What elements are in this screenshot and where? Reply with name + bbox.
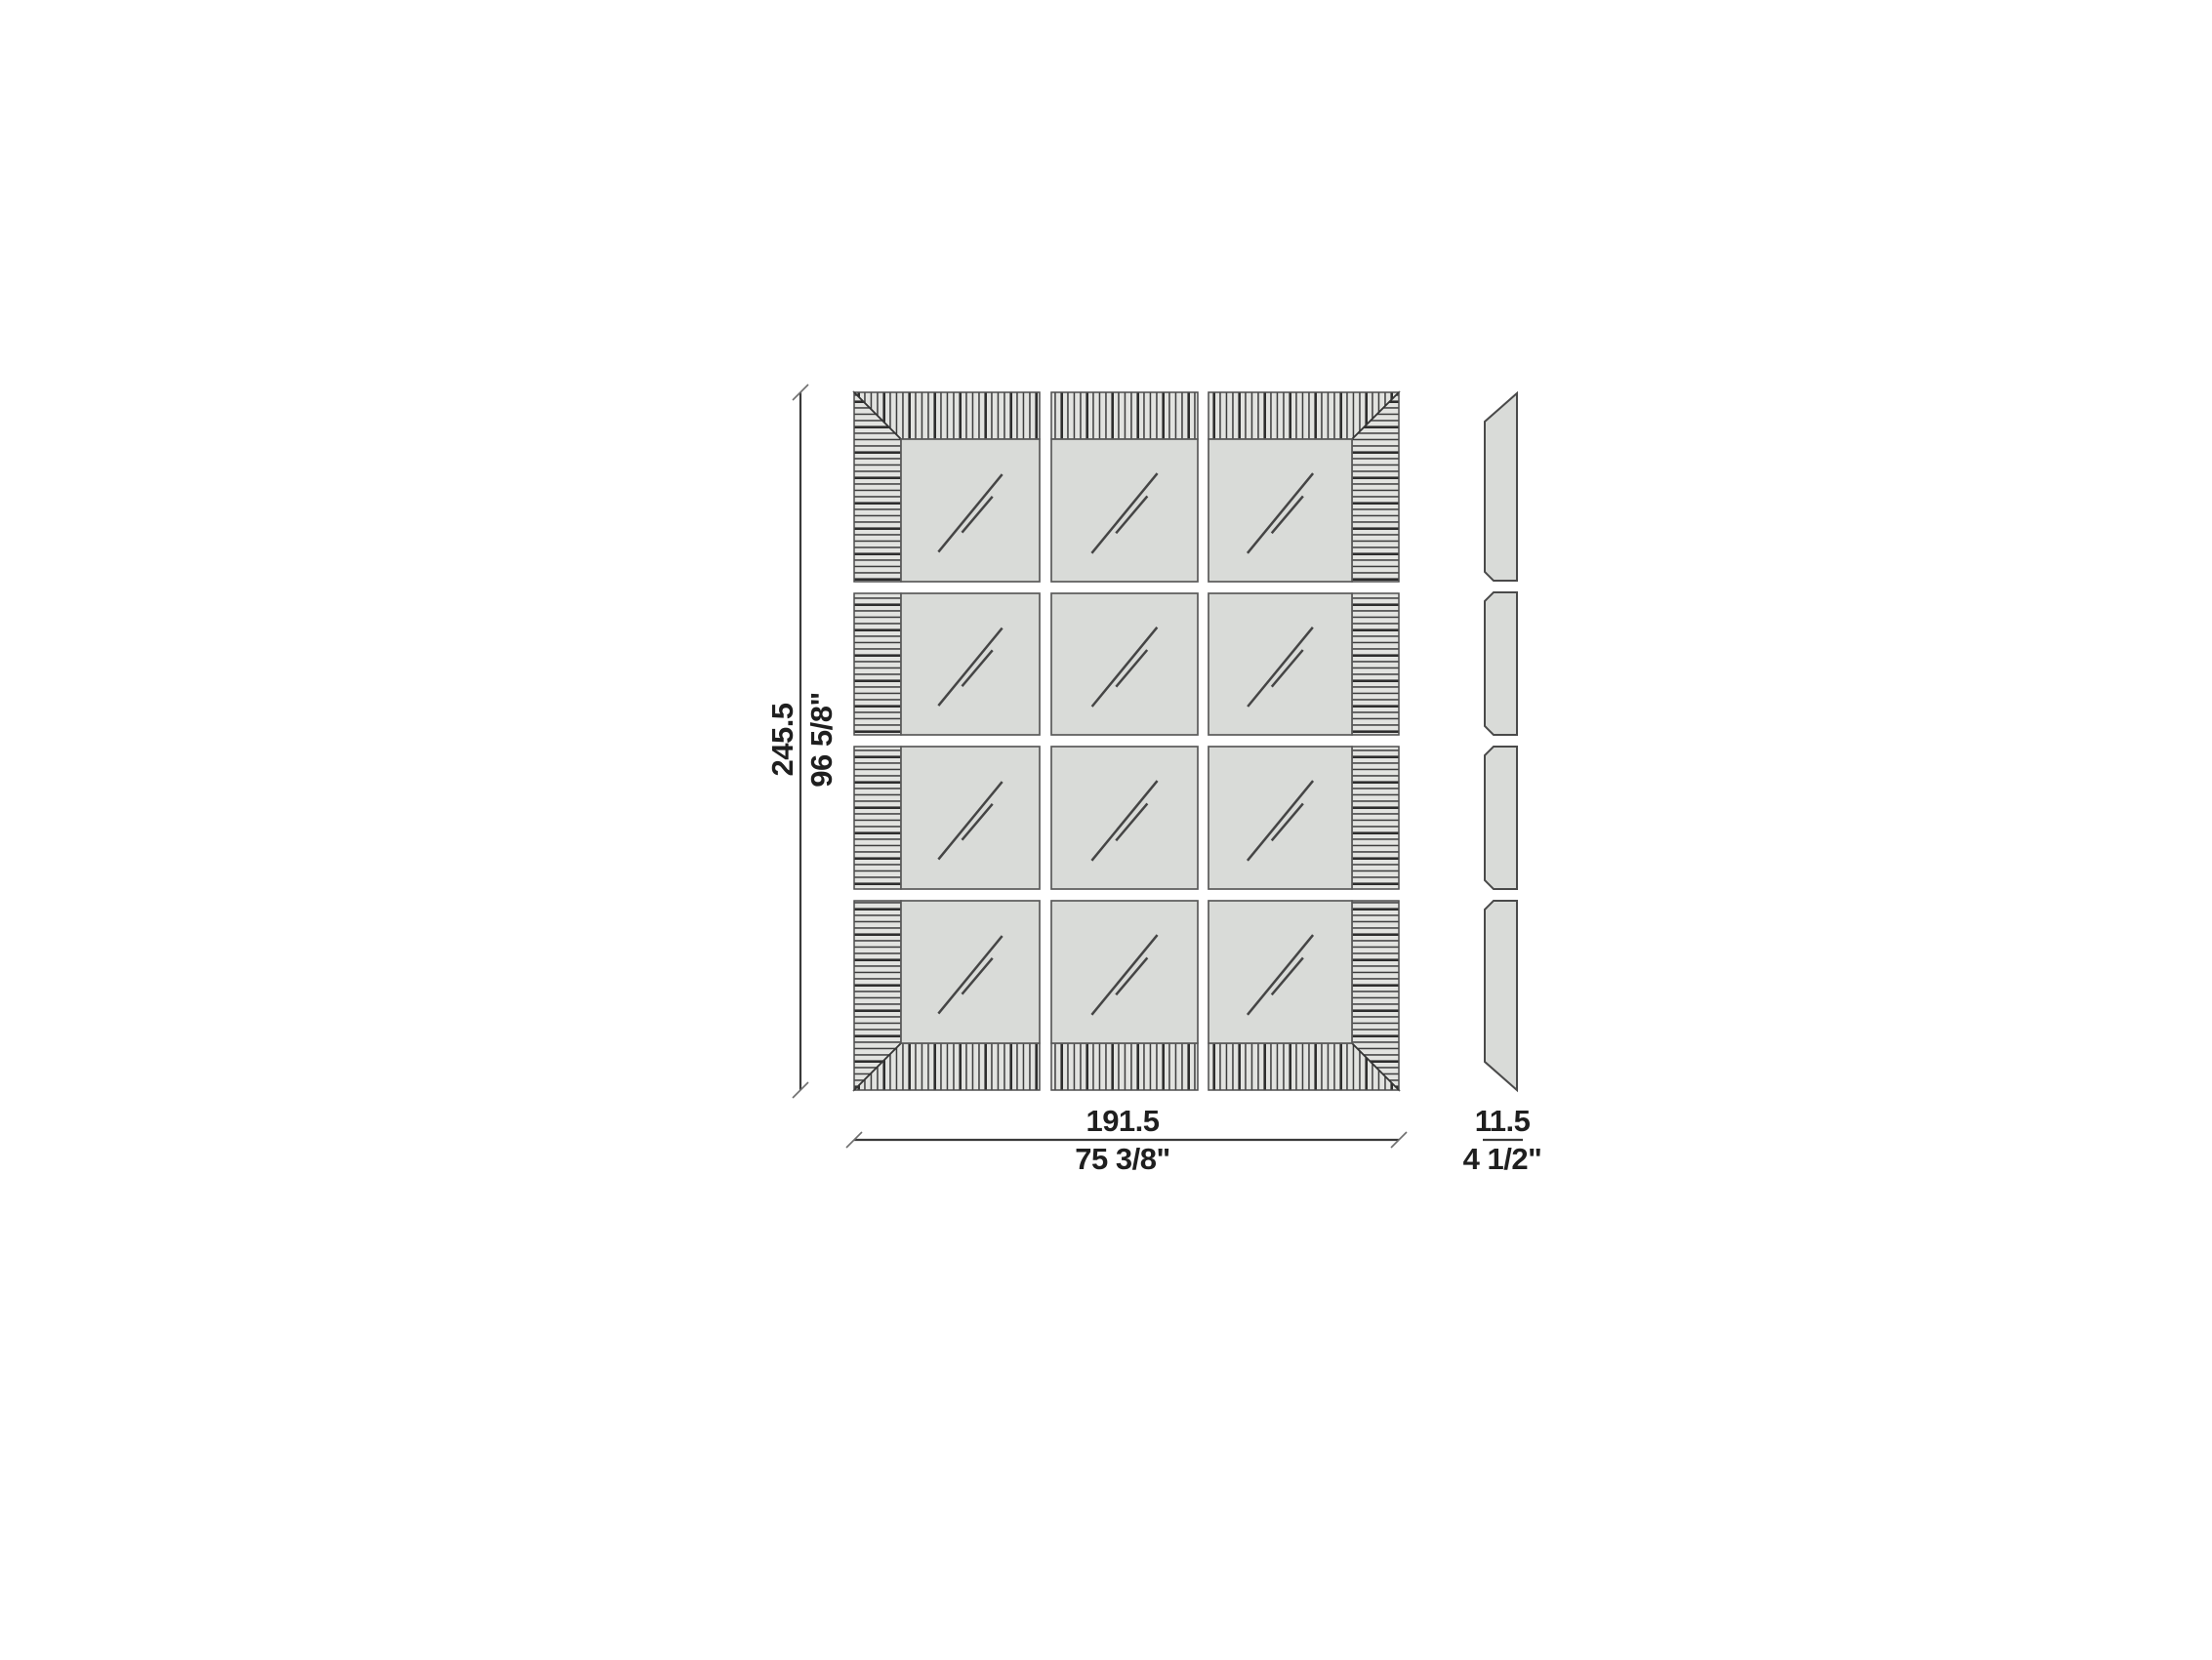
mirror-tile-r2c3 [1208, 593, 1399, 735]
width-inches-label: 75 3/8" [1075, 1142, 1169, 1176]
mirror-tile-r3c3 [1208, 747, 1399, 889]
side-profile-segment-3 [1485, 747, 1517, 889]
mirror-tile-r3c2 [1051, 747, 1198, 889]
mirror-tile-r4c3 [1208, 901, 1399, 1090]
mirror-panel [1208, 747, 1352, 889]
mirror-panel [1051, 439, 1198, 582]
mirror-panel [1051, 593, 1198, 735]
mirror-panel [1208, 901, 1352, 1043]
mirror-panel [1051, 901, 1198, 1043]
mirror-tile-r4c2 [1051, 901, 1198, 1090]
mirror-tile-r3c1 [854, 747, 1040, 889]
mirror-tile-r1c2 [1051, 392, 1198, 582]
mirror-tile-r2c2 [1051, 593, 1198, 735]
height-cm-label: 245.5 [765, 703, 799, 776]
mirror-tile-r2c1 [854, 593, 1040, 735]
mirror-tile-r4c1 [854, 901, 1040, 1090]
frame-hatch-right [1352, 593, 1399, 735]
side-profile-segment-4 [1485, 901, 1517, 1090]
technical-drawing-page: 245.5 96 5/8" 191.5 75 3/8" 11.5 4 1/2" [0, 0, 2212, 1660]
frame-hatch-bottom [1051, 1043, 1198, 1090]
width-cm-label: 191.5 [1086, 1104, 1159, 1138]
side-profile-segment-2 [1485, 592, 1517, 735]
mirror-panel [1208, 593, 1352, 735]
mirror-panel [901, 439, 1040, 582]
mirror-tile-r1c3 [1208, 392, 1399, 582]
mirror-panel [901, 593, 1040, 735]
mirror-dimension-diagram: 245.5 96 5/8" 191.5 75 3/8" 11.5 4 1/2" [0, 0, 2212, 1660]
mirror-panel [901, 901, 1040, 1043]
side-profile-segment-1 [1485, 393, 1517, 581]
frame-hatch-top [1051, 392, 1198, 439]
frame-hatch-left [854, 593, 901, 735]
mirror-panel [901, 747, 1040, 889]
depth-cm-label: 11.5 [1475, 1104, 1531, 1138]
depth-inches-label: 4 1/2" [1463, 1142, 1542, 1176]
mirror-panel [1208, 439, 1352, 582]
frame-hatch-left [854, 747, 901, 889]
mirror-panel [1051, 747, 1198, 889]
mirror-tile-r1c1 [854, 392, 1040, 582]
frame-hatch-right [1352, 747, 1399, 889]
height-inches-label: 96 5/8" [804, 692, 839, 787]
